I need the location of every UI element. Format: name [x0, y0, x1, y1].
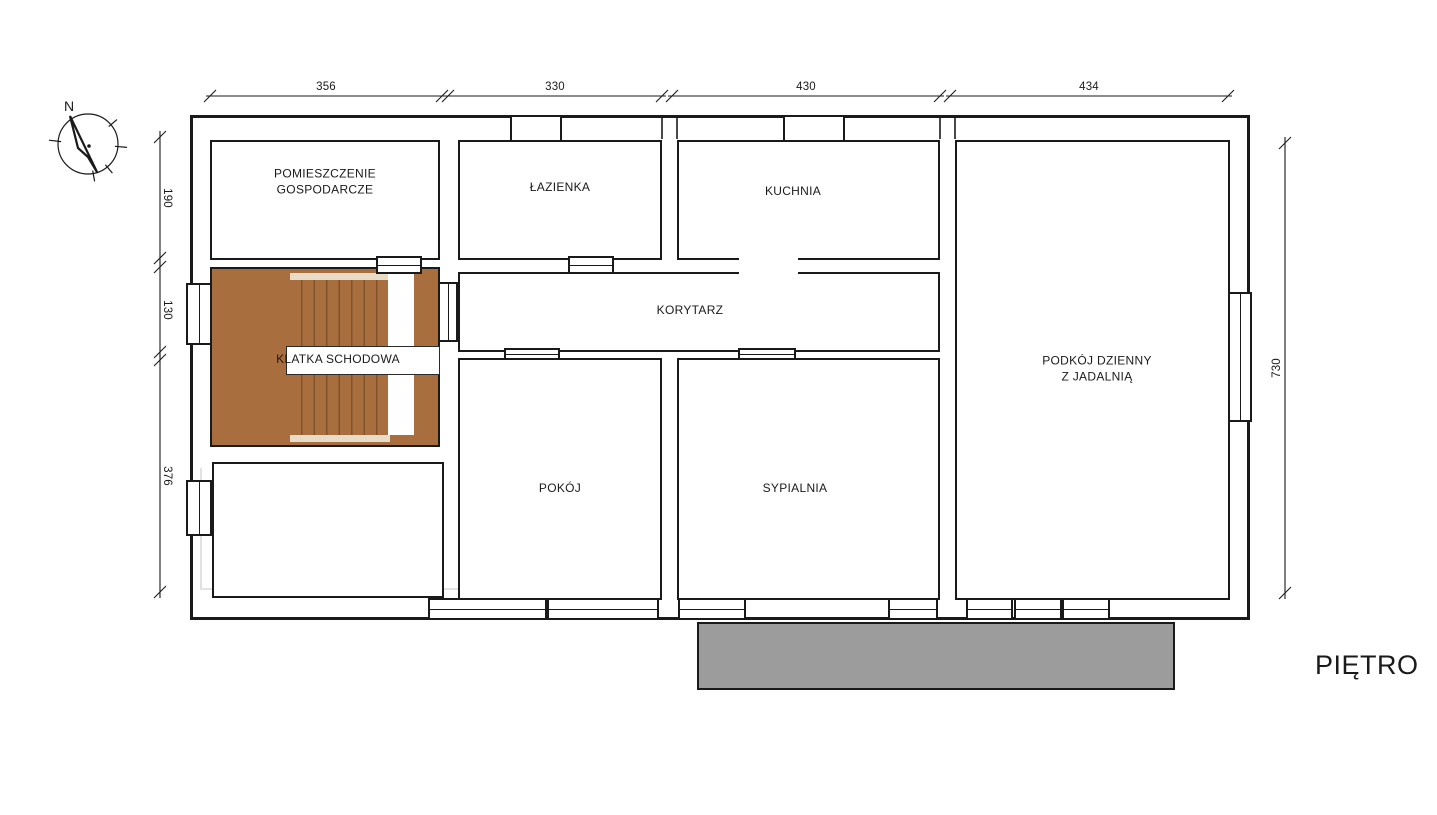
room-bathroom: [458, 140, 662, 260]
room-label-pokoj: POKÓJ: [539, 481, 581, 497]
door-threshold: [738, 348, 796, 360]
room-unlabeled: [212, 462, 444, 598]
dim-top-1: 356: [316, 81, 336, 93]
dim-left-1: 190: [161, 188, 173, 208]
stair-landing-strip: [290, 435, 390, 442]
drawing-title: PIĘTRO: [1315, 650, 1419, 681]
window: [186, 283, 212, 345]
room-kitchen: [677, 140, 940, 260]
room-label-corridor: KORYTARZ: [657, 303, 724, 319]
dim-top-3: 430: [796, 81, 816, 93]
door-frame: [438, 282, 458, 342]
room-pokoj: [458, 358, 662, 600]
compass-needle: [70, 116, 97, 172]
door-threshold: [504, 348, 560, 360]
room-label-bathroom: ŁAZIENKA: [530, 180, 590, 196]
room-utility: [210, 140, 440, 260]
door-threshold: [888, 598, 938, 620]
stair-landing-strip: [290, 273, 390, 280]
kitchen-opening: [739, 254, 798, 276]
room-label-bedroom: SYPIALNIA: [763, 481, 828, 497]
dim-right-1: 730: [1271, 358, 1283, 378]
window: [428, 598, 547, 620]
window: [678, 598, 746, 620]
balcony: [697, 622, 1175, 690]
dim-left-2: 130: [161, 300, 173, 320]
stair-flight-upper: [290, 280, 390, 346]
dim-top-2: 330: [545, 81, 565, 93]
floor-plan: POMIESZCZENIE GOSPODARCZE ŁAZIENKA KUCHN…: [0, 0, 1437, 815]
chimney-block: [783, 115, 845, 142]
compass-rose: [49, 114, 127, 181]
room-label-kitchen: KUCHNIA: [765, 184, 821, 200]
stair-landing: [388, 373, 414, 435]
chimney-block: [510, 115, 562, 142]
dim-left-3: 376: [161, 466, 173, 486]
room-label-staircase: KLATKA SCHODOWA: [276, 352, 400, 368]
door-threshold: [568, 256, 614, 274]
dim-top-4: 434: [1079, 81, 1099, 93]
window: [547, 598, 659, 620]
door-threshold: [1062, 598, 1110, 620]
door-threshold: [376, 256, 422, 274]
stair-flight-lower: [290, 373, 390, 435]
stair-landing: [388, 273, 414, 346]
window: [1228, 292, 1252, 422]
room-bedroom: [677, 358, 940, 600]
window: [186, 480, 212, 536]
door-threshold: [1014, 598, 1062, 620]
compass-north-label: N: [64, 98, 74, 114]
room-label-living: PODKÓJ DZIENNY Z JADALNIĄ: [1042, 353, 1152, 384]
room-label-utility: POMIESZCZENIE GOSPODARCZE: [260, 166, 390, 197]
door-threshold: [966, 598, 1013, 620]
